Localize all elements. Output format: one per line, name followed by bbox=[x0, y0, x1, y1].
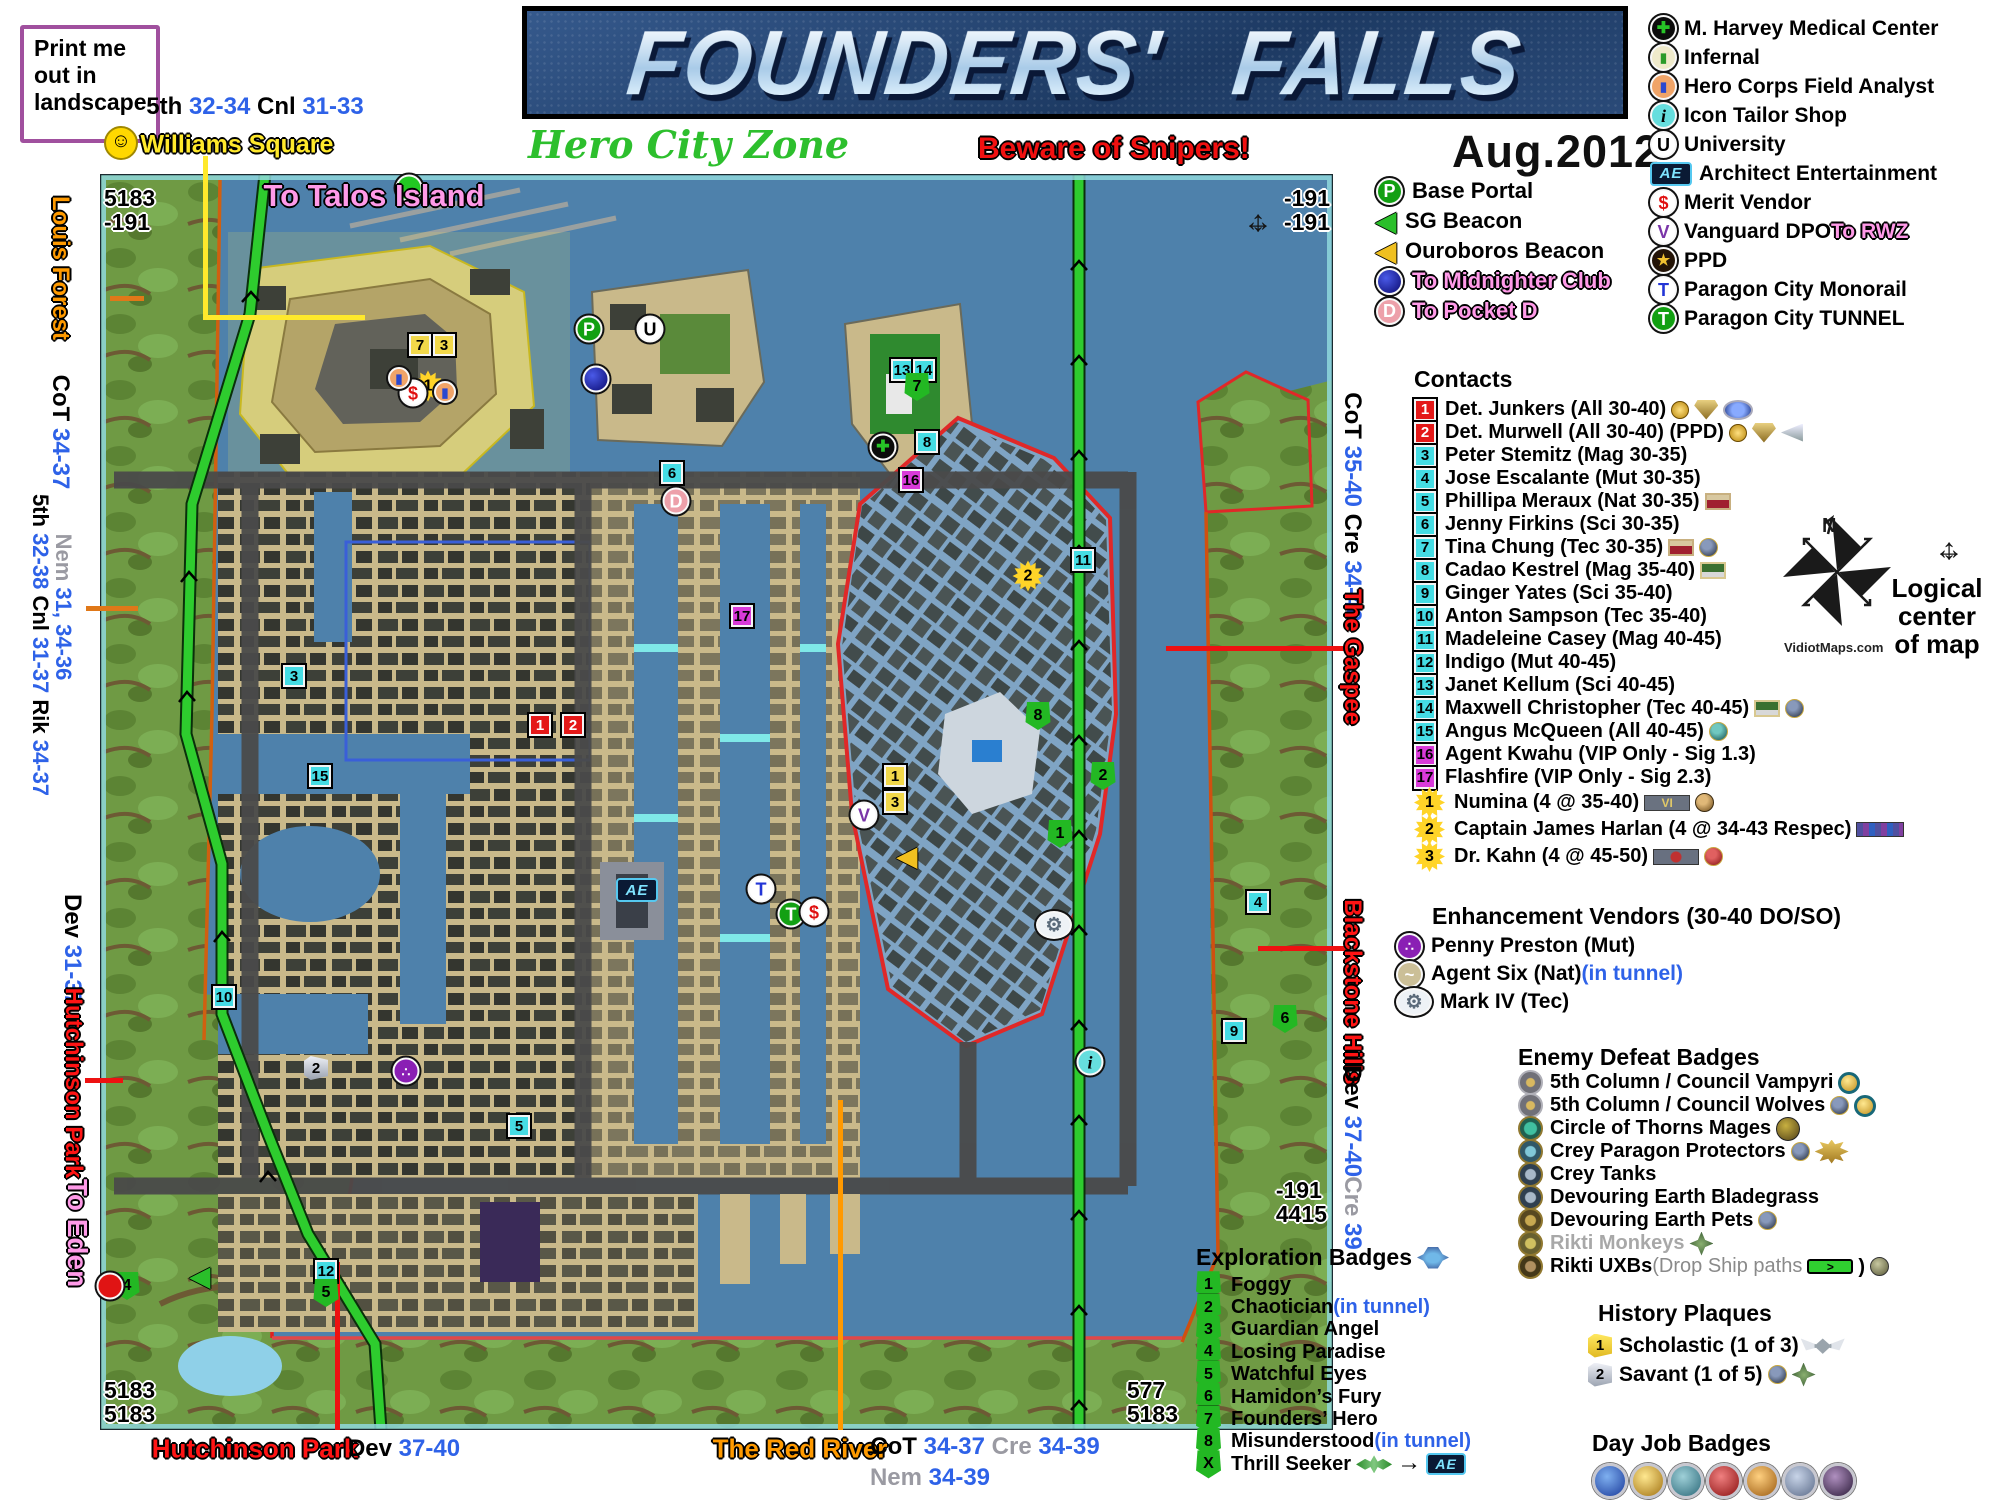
contact-row: 17Flashfire (VIP Only - Sig 2.3) bbox=[1414, 766, 1904, 789]
edge-label: Williams Square bbox=[141, 131, 334, 160]
zone-title-banner: FOUNDERS' FALLS bbox=[522, 6, 1628, 119]
map-marker-S: $ bbox=[801, 899, 828, 926]
cbox-icon: 9 bbox=[1414, 583, 1436, 605]
dayjob-badge-icon bbox=[1630, 1463, 1666, 1499]
history-plaques-panel: History Plaques 1Scholastic (1 of 3)2Sav… bbox=[1588, 1300, 1845, 1389]
label-segment: Ouroboros Beacon bbox=[1405, 238, 1604, 264]
edge-label: Dev 37-40 bbox=[1338, 1065, 1366, 1177]
badge-medal-gold-icon bbox=[1729, 424, 1747, 442]
map-marker-analyst: ▮ bbox=[434, 381, 456, 403]
transit-legend: PBase Portal◀SG Beacon◀Ouroboros BeaconT… bbox=[1376, 176, 1611, 326]
enemy-badge-row: Circle of Thorns Mages bbox=[1518, 1117, 1889, 1140]
pointer-line bbox=[86, 606, 138, 611]
sgb-icon: ◀ bbox=[1376, 208, 1396, 234]
label-segment: CoT bbox=[1339, 392, 1366, 445]
enemy-heading: Enemy Defeat Badges bbox=[1518, 1044, 1889, 1071]
contact-row: 14Maxwell Christopher (Tec 40-45) bbox=[1414, 697, 1904, 720]
exploration-badge-icon bbox=[1417, 1247, 1449, 1269]
badge-disc-teal-icon bbox=[1709, 722, 1728, 741]
history-plaque-row: 2Savant (1 of 5) bbox=[1588, 1360, 1845, 1389]
badge-disc-dark-icon bbox=[1768, 1365, 1787, 1384]
map-marker-mid bbox=[583, 366, 610, 393]
poi-legend-row: ▮Hero Corps Field Analyst bbox=[1650, 72, 1938, 101]
label-segment: Dev bbox=[1339, 1065, 1366, 1116]
rbox-icon: 2 bbox=[1414, 422, 1436, 444]
rbox-icon: 1 bbox=[1414, 399, 1436, 421]
map-marker-ybox-7: 7 bbox=[409, 334, 431, 356]
hosp-icon: ✚ bbox=[1650, 15, 1677, 42]
U-icon: U bbox=[1650, 131, 1677, 158]
badge-disc-laurel-icon bbox=[1695, 793, 1714, 812]
poi-legend-row: ★PPD bbox=[1650, 246, 1938, 275]
badge-plaque-red-icon bbox=[1668, 539, 1694, 556]
S-icon: $ bbox=[1650, 189, 1677, 216]
contact-row: 3Peter Stemitz (Mag 30-35) bbox=[1414, 444, 1904, 467]
ae-icon: AE bbox=[1650, 162, 1692, 186]
badge-shield-wing-icon bbox=[1752, 423, 1776, 443]
contact-row: 4Jose Escalante (Mut 30-35) bbox=[1414, 467, 1904, 490]
label-segment: (in tunnel) bbox=[1333, 1296, 1430, 1319]
badge-disc-rikti2-icon bbox=[1870, 1257, 1889, 1276]
label-segment: Blackstone Hills bbox=[1339, 899, 1366, 1084]
transit-legend-row: PBase Portal bbox=[1376, 176, 1611, 206]
badge-badge-sword-icon bbox=[1792, 1363, 1816, 1387]
label-segment: 39 bbox=[1339, 1223, 1366, 1250]
map-marker-U: U bbox=[637, 316, 664, 343]
label-segment: 37-40 bbox=[1339, 1116, 1366, 1177]
print-note-line: out in bbox=[34, 62, 152, 89]
contacts-heading: Contacts bbox=[1414, 366, 1904, 393]
map-coordinate: 5775183 bbox=[1127, 1378, 1178, 1426]
cbox-icon: 3 bbox=[1414, 445, 1436, 467]
exploration-heading: Exploration Badges bbox=[1196, 1244, 1412, 1271]
edge-label: CoT 35-40 Cre 34-40 bbox=[1338, 392, 1366, 621]
map-artwork bbox=[100, 174, 1333, 1430]
vendor-row: ∴Penny Preston (Mut) bbox=[1396, 932, 1841, 960]
edge-label: CoT 34-37 bbox=[46, 375, 74, 490]
label-segment: To Talos Island bbox=[263, 178, 484, 213]
dayjob-badge-icon bbox=[1668, 1463, 1704, 1499]
map-marker-rbox-1: 1 bbox=[529, 714, 551, 736]
exploration-badge-row: 1Foggy bbox=[1196, 1274, 1471, 1296]
contact-row: 2Captain James Harlan (4 @ 34-43 Respec) bbox=[1414, 816, 1904, 843]
zone-title: FOUNDERS' FALLS bbox=[623, 9, 1528, 115]
analyst-icon: ▮ bbox=[1650, 73, 1677, 100]
edge-label: Louis Forest bbox=[46, 196, 74, 340]
dayjob-badge-icon bbox=[1706, 1463, 1742, 1499]
transit-legend-row: ◀SG Beacon bbox=[1376, 206, 1611, 236]
label-segment: 34-37 bbox=[924, 1433, 985, 1460]
smiley-icon: ☺ bbox=[104, 126, 138, 160]
contact-row: 13Janet Kellum (Sci 40-45) bbox=[1414, 674, 1904, 697]
label-segment: Cnl bbox=[250, 93, 302, 120]
hp1-icon: 1 bbox=[1588, 1334, 1612, 1358]
poi-legend-row: $Merit Vendor bbox=[1650, 188, 1938, 217]
contact-row: 2Det. Murwell (All 30-40) (PPD) bbox=[1414, 421, 1904, 444]
d-uxb-icon bbox=[1518, 1254, 1543, 1279]
badge-plaque-green-icon bbox=[1754, 700, 1780, 717]
edge-label: CoT 34-37 Cre 34-39 bbox=[870, 1433, 1099, 1461]
badge-bar-respec-icon bbox=[1856, 822, 1904, 837]
hp2-icon: 2 bbox=[1588, 1363, 1612, 1387]
label-segment: To RWZ bbox=[1831, 220, 1908, 244]
label-segment: To Midnighter Club bbox=[1412, 268, 1611, 294]
map-marker-eden bbox=[97, 1273, 124, 1300]
exploration-badge-row: 3Guardian Angel bbox=[1196, 1319, 1471, 1341]
label-segment: SG Beacon bbox=[1405, 208, 1522, 234]
transit-legend-row: ◀Ouroboros Beacon bbox=[1376, 236, 1611, 266]
history-plaque-row: 1Scholastic (1 of 3) bbox=[1588, 1331, 1845, 1360]
exploration-badge-row: 4Losing Paradise bbox=[1196, 1341, 1471, 1363]
enemy-badge-row: 5th Column / Council Vampyri bbox=[1518, 1071, 1889, 1094]
label-segment: 34-37 bbox=[28, 740, 53, 796]
cbox-icon: 8 bbox=[1414, 560, 1436, 582]
pointer-line bbox=[203, 315, 365, 320]
vidiotmaps-watermark: VidiotMaps.com bbox=[1784, 640, 1883, 655]
day-job-badges-panel: Day Job Badges bbox=[1592, 1430, 1858, 1499]
label-segment: The Red River bbox=[713, 1434, 888, 1464]
d-van-icon bbox=[1518, 1093, 1543, 1118]
enhancement-vendors-panel: Enhancement Vendors (30-40 DO/SO) ∴Penny… bbox=[1396, 903, 1841, 1016]
D-icon: D bbox=[1376, 298, 1403, 325]
map-marker-cbox-5: 5 bbox=[508, 1115, 530, 1137]
badge-wing-silver-icon bbox=[1781, 424, 1803, 442]
gear-icon: ⚙ bbox=[1396, 988, 1432, 1016]
badge-paren-icon: ) bbox=[1858, 1258, 1865, 1276]
edge-label: The Red River bbox=[713, 1434, 888, 1465]
edge-label: Nem 34-39 bbox=[870, 1464, 990, 1492]
map-date: Aug.2012 bbox=[1452, 126, 1660, 178]
badge-disc-dark-icon bbox=[1699, 538, 1718, 557]
badge-disc-red-icon bbox=[1704, 847, 1723, 866]
exploration-badge-row: 5Watchful Eyes bbox=[1196, 1364, 1471, 1386]
edge-label: Hutchinson Park bbox=[152, 1434, 359, 1465]
badge-arrow-icon: → bbox=[1397, 1455, 1421, 1473]
badge-disc-dark-icon bbox=[1758, 1211, 1777, 1230]
vendors-heading: Enhancement Vendors (30-40 DO/SO) bbox=[1432, 903, 1841, 930]
poi-legend: ✚M. Harvey Medical Center▮Infernal▮Hero … bbox=[1650, 14, 1938, 333]
map-marker-P: P bbox=[576, 316, 603, 343]
label-segment: Hutchinson Park bbox=[152, 1434, 359, 1464]
map-marker-cbox-4: 4 bbox=[1247, 891, 1269, 913]
badge-bar-vi-icon: VI bbox=[1644, 795, 1690, 811]
dayjobs-heading: Day Job Badges bbox=[1592, 1430, 1858, 1457]
dayjob-badge-icon bbox=[1744, 1463, 1780, 1499]
map-marker-cbox-12: 12 bbox=[315, 1260, 337, 1282]
print-note: Print me out in landscape bbox=[20, 25, 160, 143]
cbox-icon: 11 bbox=[1414, 629, 1436, 651]
cbox-icon: 4 bbox=[1414, 468, 1436, 490]
exploration-badge-row: 7Founders’ Hero bbox=[1196, 1408, 1471, 1430]
label-segment: 32-34 bbox=[189, 93, 250, 120]
label-segment: 35-40 bbox=[1339, 446, 1366, 507]
map-marker-Tm: T bbox=[748, 876, 775, 903]
badge-shield-wing-icon bbox=[1694, 400, 1718, 420]
badge-btn-gold-icon bbox=[1838, 1072, 1860, 1094]
enemy-badge-row: Crey Paragon Protectors bbox=[1518, 1140, 1889, 1163]
edge-label: Nem 31, 34-36 bbox=[50, 534, 76, 681]
dayjob-badge-icon bbox=[1592, 1463, 1628, 1499]
d-de-icon bbox=[1518, 1208, 1543, 1233]
badge-plaque-green-icon bbox=[1700, 562, 1726, 579]
transit-legend-row: DTo Pocket D bbox=[1376, 296, 1611, 326]
d-cot-icon bbox=[1518, 1116, 1543, 1141]
badge-medal-gold-icon bbox=[1671, 401, 1689, 419]
label-segment: (Drop Ship paths bbox=[1652, 1255, 1802, 1278]
enemy-defeat-badges-panel: Enemy Defeat Badges 5th Column / Council… bbox=[1518, 1044, 1889, 1278]
map-marker-gear: ⚙ bbox=[1036, 911, 1072, 939]
label-segment: To Pocket D bbox=[1412, 298, 1538, 324]
label-segment: (in tunnel) bbox=[1374, 1430, 1471, 1453]
contact-row: 15Angus McQueen (All 40-45) bbox=[1414, 720, 1904, 743]
badge-btn-gold-icon bbox=[1854, 1095, 1876, 1117]
transit-legend-row: To Midnighter Club bbox=[1376, 266, 1611, 296]
cbox-icon: 14 bbox=[1414, 698, 1436, 720]
map-marker-hosp: ✚ bbox=[870, 434, 897, 461]
d-rik-icon bbox=[1518, 1231, 1543, 1256]
exploration-badge-row: 2Chaotician (in tunnel) bbox=[1196, 1296, 1471, 1318]
label-segment: 34-37 bbox=[47, 428, 74, 489]
poi-legend-row: ✚M. Harvey Medical Center bbox=[1650, 14, 1938, 43]
vendor-row: ⚙Mark IV (Tec) bbox=[1396, 988, 1841, 1016]
edge-label: Blackstone Hills bbox=[1338, 899, 1366, 1084]
exploration-badge-row: 6Hamidon’s Fury bbox=[1196, 1386, 1471, 1408]
map-coordinate: -1914415 bbox=[1276, 1178, 1327, 1226]
map-marker-penny: ∴ bbox=[393, 1058, 420, 1085]
edge-label: Dev 37-40 bbox=[348, 1435, 460, 1463]
poi-legend-row: VVanguard DPO To RWZ bbox=[1650, 217, 1938, 246]
edge-label: To Talos Island bbox=[263, 178, 484, 214]
map-marker-D: D bbox=[663, 488, 690, 515]
cbox-icon: 5 bbox=[1414, 491, 1436, 513]
enemy-badge-row: Devouring Earth Bladegrass bbox=[1518, 1186, 1889, 1209]
label-segment: 34-39 bbox=[929, 1464, 990, 1491]
poi-legend-row: iIcon Tailor Shop bbox=[1650, 101, 1938, 130]
map-marker-cbox-11: 11 bbox=[1072, 549, 1094, 571]
poi-legend-row: AEArchitect Entertainment bbox=[1650, 159, 1938, 188]
contact-row: 16Agent Kwahu (VIP Only - Sig 1.3) bbox=[1414, 743, 1904, 766]
map-canvas bbox=[100, 174, 1333, 1430]
label-segment: To Eden bbox=[62, 1179, 93, 1287]
label-segment: Williams Square bbox=[141, 131, 334, 159]
badge-disc-greenwing-icon bbox=[1356, 1455, 1392, 1473]
poi-legend-row: TParagon City TUNNEL bbox=[1650, 304, 1938, 333]
print-note-line: landscape bbox=[34, 89, 152, 116]
pointer-line bbox=[1166, 646, 1346, 651]
map-coordinate: 51835183 bbox=[104, 1378, 155, 1426]
cbox-icon: 13 bbox=[1414, 675, 1436, 697]
mbox-icon: 16 bbox=[1414, 744, 1436, 766]
badge-disc-dark-icon bbox=[1830, 1096, 1849, 1115]
map-coordinate: -191-191 bbox=[1284, 186, 1330, 234]
badge-ae-mini-icon: AE bbox=[1426, 1453, 1466, 1475]
founders-falls-zone-map: Print me out in landscape ☺ FOUNDERS' FA… bbox=[0, 0, 2000, 1500]
poi-legend-row: UUniversity bbox=[1650, 130, 1938, 159]
pointer-line bbox=[1258, 946, 1346, 951]
map-marker-cbox-6: 6 bbox=[661, 462, 683, 484]
contact-row: 1Numina (4 @ 35-40)VI bbox=[1414, 789, 1904, 816]
map-marker-ybox-1: 1 bbox=[884, 765, 906, 787]
map-marker-ybox-3: 3 bbox=[884, 791, 906, 813]
label-segment: CoT bbox=[47, 375, 74, 428]
badge-disc-bluewing-icon bbox=[1723, 400, 1753, 420]
svg-text:N: N bbox=[1822, 515, 1836, 537]
map-marker-cbox-9: 9 bbox=[1223, 1020, 1245, 1042]
badge-badge-sword-icon bbox=[1689, 1232, 1713, 1256]
sniper-warning: Beware of Snipers! bbox=[978, 132, 1250, 166]
cbox-icon: 12 bbox=[1414, 652, 1436, 674]
ppd-icon: ★ bbox=[1650, 247, 1677, 274]
edge-label: Cre 39 bbox=[1338, 1176, 1366, 1249]
label-segment: Louis Forest bbox=[47, 196, 74, 340]
map-coordinate: 5183-191 bbox=[104, 186, 155, 234]
P-icon: P bbox=[1376, 178, 1403, 205]
contact-row: 5Phillipa Meraux (Nat 30-35) bbox=[1414, 490, 1904, 513]
enemy-badge-row: Rikti Monkeys bbox=[1518, 1232, 1889, 1255]
badge-plaque-red-icon bbox=[1705, 493, 1731, 510]
label-segment: (in tunnel) bbox=[1582, 962, 1683, 986]
d-crey-icon bbox=[1518, 1139, 1543, 1164]
map-marker-cbox-8: 8 bbox=[916, 431, 938, 453]
vendor-row: ~Agent Six (Nat) (in tunnel) bbox=[1396, 960, 1841, 988]
label-segment: 5th bbox=[146, 93, 189, 120]
label-segment: Base Portal bbox=[1412, 178, 1533, 204]
label-segment: Rik bbox=[28, 693, 53, 739]
poi-legend-row: ▮Infernal bbox=[1650, 43, 1938, 72]
label-segment: 34-39 bbox=[1038, 1433, 1099, 1460]
label-segment: Dev bbox=[348, 1435, 399, 1462]
map-marker-cbox-15: 15 bbox=[309, 765, 331, 787]
label-segment: 31, 34-36 bbox=[51, 587, 76, 680]
enemy-badge-row: Devouring Earth Pets bbox=[1518, 1209, 1889, 1232]
label-segment: The Gaspee bbox=[1339, 589, 1366, 725]
penny-icon: ∴ bbox=[1396, 933, 1423, 960]
cbox-icon: 6 bbox=[1414, 514, 1436, 536]
edge-label: To Eden bbox=[61, 1179, 93, 1287]
badge-wings-silver-icon bbox=[1801, 1335, 1845, 1357]
ouro-icon: ◀ bbox=[1376, 238, 1396, 264]
label-segment: Dev bbox=[59, 894, 86, 945]
enemy-badge-row: Crey Tanks bbox=[1518, 1163, 1889, 1186]
map-marker-cbox-10: 10 bbox=[213, 986, 235, 1008]
map-marker-ae: AE bbox=[616, 878, 658, 902]
agentsix-icon: ~ bbox=[1396, 961, 1423, 988]
badge-disc-dark-icon bbox=[1791, 1142, 1810, 1161]
pointer-line bbox=[203, 156, 208, 319]
Tm-icon: T bbox=[1650, 276, 1677, 303]
label-segment: Nem bbox=[870, 1464, 929, 1491]
history-heading: History Plaques bbox=[1598, 1300, 1845, 1327]
map-marker-V: V bbox=[851, 802, 878, 829]
V-icon: V bbox=[1650, 218, 1677, 245]
mbox-icon: 17 bbox=[1414, 767, 1436, 789]
sun-icon: 1 bbox=[1414, 787, 1445, 818]
label-segment: Cre bbox=[1339, 1176, 1366, 1223]
zone-subtitle: Hero City Zone bbox=[528, 122, 849, 167]
label-segment: CoT bbox=[870, 1433, 923, 1460]
sun-icon: 2 bbox=[1414, 814, 1445, 845]
map-marker-ouro: ◀ bbox=[897, 843, 917, 869]
pointer-line bbox=[110, 296, 144, 301]
dayjob-badge-icon bbox=[1782, 1463, 1818, 1499]
edge-label: Hutchinson Park bbox=[59, 988, 87, 1179]
label-segment: Nem bbox=[51, 534, 76, 588]
cbox-icon: 10 bbox=[1414, 606, 1436, 628]
label-segment: Cre bbox=[985, 1433, 1038, 1460]
badge-bar-green-icon: > bbox=[1807, 1259, 1853, 1274]
mid-icon bbox=[1376, 268, 1403, 295]
pointer-line bbox=[838, 1100, 843, 1430]
Tt-icon: T bbox=[1650, 305, 1677, 332]
enemy-badge-row: 5th Column / Council Wolves bbox=[1518, 1094, 1889, 1117]
i-icon: i bbox=[1650, 102, 1677, 129]
map-marker-cbox-3: 3 bbox=[283, 665, 305, 687]
exploration-badge-row: XThrill Seeker→AE bbox=[1196, 1453, 1471, 1475]
badge-bar-kahn-icon bbox=[1653, 849, 1699, 865]
shield-icon: X bbox=[1196, 1450, 1221, 1478]
map-marker-plq2-2: 2 bbox=[304, 1056, 328, 1080]
label-segment: Cre bbox=[1339, 507, 1366, 560]
label-segment: 31-33 bbox=[302, 93, 363, 120]
infernal-icon: ▮ bbox=[1650, 44, 1677, 71]
contact-row: 3Dr. Kahn (4 @ 45-50) bbox=[1414, 843, 1904, 870]
map-marker-i: i bbox=[1077, 1049, 1104, 1076]
poi-legend-row: TParagon City Monorail bbox=[1650, 275, 1938, 304]
cbox-icon: 7 bbox=[1414, 537, 1436, 559]
contact-row: 1Det. Junkers (All 30-40) bbox=[1414, 398, 1904, 421]
map-marker-rbox-2: 2 bbox=[562, 714, 584, 736]
label-segment: Hutchinson Park bbox=[60, 988, 87, 1179]
edge-label: 5th 32-34 Cnl 31-33 bbox=[146, 93, 363, 121]
badge-disc-dark-icon bbox=[1785, 699, 1804, 718]
label-segment: 37-40 bbox=[399, 1435, 460, 1462]
map-marker-mbox-17: 17 bbox=[731, 605, 753, 627]
badge-badge-pp-icon bbox=[1815, 1140, 1849, 1164]
d-tank-icon bbox=[1518, 1162, 1543, 1187]
badge-disc-cotlg-icon bbox=[1776, 1117, 1800, 1141]
enemy-badge-row: Rikti UXBs (Drop Ship paths >) bbox=[1518, 1255, 1889, 1278]
cbox-icon: 15 bbox=[1414, 721, 1436, 743]
print-note-line: Print me bbox=[34, 35, 152, 62]
dayjob-badge-icon bbox=[1820, 1463, 1856, 1499]
edge-label: The Gaspee bbox=[1338, 589, 1366, 725]
map-marker-ybox-3: 3 bbox=[433, 334, 455, 356]
d-van-icon bbox=[1518, 1070, 1543, 1095]
exploration-badge-row: 8Misunderstood (in tunnel) bbox=[1196, 1431, 1471, 1453]
sun-icon: 3 bbox=[1414, 841, 1445, 872]
map-marker-mbox-16: 16 bbox=[900, 469, 922, 491]
exploration-badges-panel: Exploration Badges 1Foggy2Chaotician (in… bbox=[1196, 1244, 1471, 1476]
d-tank-icon bbox=[1518, 1185, 1543, 1210]
map-marker-sgb: ◀ bbox=[190, 1263, 210, 1289]
pointer-line bbox=[85, 1078, 123, 1083]
label-segment: 5th bbox=[28, 494, 53, 533]
map-marker-analyst: ▮ bbox=[388, 367, 410, 389]
